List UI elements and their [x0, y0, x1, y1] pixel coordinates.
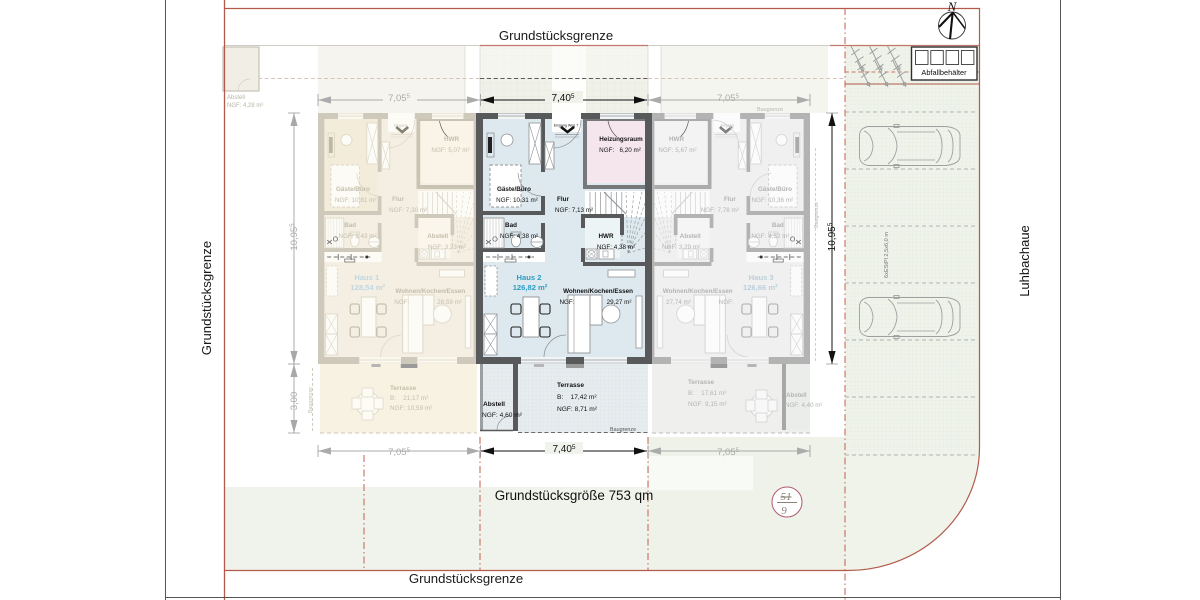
- svg-text:NGF: 7,30 m²: NGF: 7,30 m²: [389, 207, 427, 214]
- svg-text:Grundstücksgrenze: Grundstücksgrenze: [199, 241, 214, 355]
- svg-text:Haus 2: Haus 2: [517, 273, 542, 282]
- svg-text:NGF: 9,15 m²: NGF: 9,15 m²: [688, 401, 727, 408]
- svg-text:NGF: 5,67 m²: NGF: 5,67 m²: [658, 147, 696, 154]
- svg-text:Abstell: Abstell: [483, 401, 505, 408]
- svg-text:Wohnen/Kochen/Essen: Wohnen/Kochen/Essen: [563, 288, 633, 295]
- svg-text:HWR: HWR: [598, 233, 613, 240]
- svg-text:Heizungsraum: Heizungsraum: [599, 136, 643, 143]
- svg-text:Terrasse: Terrasse: [688, 379, 715, 386]
- svg-text:Flur: Flur: [392, 196, 404, 203]
- svg-text:NGF: 3,29 m²: NGF: 3,29 m²: [662, 244, 700, 251]
- svg-text:27,74 m²: 27,74 m²: [666, 299, 691, 306]
- svg-text:Eingang: Eingang: [721, 124, 734, 128]
- svg-text:B: 17,61 m²: B: 17,61 m²: [688, 390, 726, 397]
- svg-text:NGF: 4,28 m²: NGF: 4,28 m²: [227, 103, 263, 109]
- svg-text:Bad: Bad: [505, 222, 517, 229]
- svg-text:Abfallbehälter: Abfallbehälter: [921, 68, 967, 77]
- svg-text:Gäste/Büro: Gäste/Büro: [497, 186, 531, 193]
- svg-text:NGF:: NGF:: [719, 299, 734, 306]
- svg-text:NGF:: NGF:: [559, 299, 574, 306]
- svg-text:128,54 m²: 128,54 m²: [350, 283, 385, 292]
- svg-text:Terrasse: Terrasse: [557, 382, 584, 389]
- svg-text:Terrasse: Terrasse: [390, 385, 417, 392]
- svg-text:Haus 3: Haus 3: [749, 273, 774, 282]
- svg-text:Haus 1: Haus 1: [354, 273, 380, 282]
- svg-text:29,27 m²: 29,27 m²: [607, 299, 632, 306]
- svg-text:126,82 m²: 126,82 m²: [513, 283, 548, 292]
- svg-text:Gäste/Büro: Gäste/Büro: [758, 186, 792, 193]
- svg-text:Bad: Bad: [344, 222, 356, 229]
- svg-text:NGF: 10,81 m²: NGF: 10,81 m²: [335, 197, 377, 204]
- svg-text:NGF: 3,23 m²: NGF: 3,23 m²: [428, 244, 466, 251]
- svg-text:28,59 m²: 28,59 m²: [437, 299, 462, 306]
- svg-text:N: N: [947, 0, 958, 14]
- svg-text:Eingang: Eingang: [394, 124, 407, 128]
- svg-text:NGF:: NGF:: [394, 299, 409, 306]
- svg-text:NGF: 7,13 m²: NGF: 7,13 m²: [555, 207, 593, 214]
- svg-text:NGF: 6,20 m²: NGF: 6,20 m²: [599, 147, 641, 154]
- svg-text:Baugrenze: Baugrenze: [814, 202, 820, 228]
- svg-text:NGF: 5,07 m²: NGF: 5,07 m²: [431, 147, 469, 154]
- svg-text:NGF: 4,40 m²: NGF: 4,40 m²: [785, 402, 822, 409]
- svg-text:Baugrenze: Baugrenze: [610, 427, 636, 433]
- svg-text:NGF: 4,52 m²: NGF: 4,52 m²: [751, 233, 789, 240]
- svg-text:Bad: Bad: [772, 222, 784, 229]
- svg-text:Luhbachaue: Luhbachaue: [1017, 225, 1032, 297]
- svg-text:Baugrenze: Baugrenze: [757, 107, 783, 113]
- svg-text:NGF: 10,59 m²: NGF: 10,59 m²: [390, 405, 432, 412]
- svg-text:Abstell: Abstell: [227, 95, 245, 101]
- svg-text:Abstell: Abstell: [786, 392, 807, 399]
- svg-text:Flur: Flur: [724, 196, 736, 203]
- svg-text:NGF: 4,38 m²: NGF: 4,38 m²: [500, 233, 538, 240]
- svg-text:NGF: 8,71 m²: NGF: 8,71 m²: [557, 406, 598, 413]
- svg-text:9: 9: [781, 505, 787, 517]
- svg-text:NGF: 3,43 m²: NGF: 3,43 m²: [339, 233, 377, 240]
- svg-text:B: 21,17 m²: B: 21,17 m²: [390, 395, 428, 402]
- svg-text:Abstell: Abstell: [680, 233, 701, 240]
- svg-text:Gäste/Büro: Gäste/Büro: [336, 186, 370, 193]
- svg-text:Flur: Flur: [557, 196, 569, 203]
- svg-text:Abstell: Abstell: [427, 233, 448, 240]
- svg-text:Eingang Weg 7: Eingang Weg 7: [554, 124, 579, 128]
- svg-text:NGF: 4,38 m²: NGF: 4,38 m²: [597, 244, 635, 251]
- svg-text:B: 17,42 m²: B: 17,42 m²: [557, 394, 597, 401]
- svg-text:NGF: 10,36 m²: NGF: 10,36 m²: [751, 197, 793, 204]
- svg-text:10,955: 10,955: [827, 222, 838, 251]
- svg-text:NGF: 4,60 m²: NGF: 4,60 m²: [482, 412, 523, 419]
- svg-text:6xEStPl 2,5x6,0 m: 6xEStPl 2,5x6,0 m: [884, 232, 890, 278]
- svg-text:Grundstücksgröße 753 qm: Grundstücksgröße 753 qm: [495, 488, 654, 503]
- svg-text:HWR: HWR: [669, 136, 684, 143]
- svg-text:NGF: 7,78 m²: NGF: 7,78 m²: [701, 207, 739, 214]
- svg-text:126,66 m²: 126,66 m²: [743, 283, 778, 292]
- svg-text:10,955: 10,955: [289, 223, 300, 251]
- svg-text:51: 51: [781, 491, 792, 503]
- svg-text:NGF: 10,31 m²: NGF: 10,31 m²: [496, 197, 538, 204]
- svg-text:HWR: HWR: [444, 136, 459, 143]
- svg-text:Wohnen/Kochen/Essen: Wohnen/Kochen/Essen: [663, 288, 733, 295]
- svg-text:Grundstücksgrenze: Grundstücksgrenze: [409, 571, 523, 586]
- svg-text:3,00: 3,00: [289, 392, 300, 411]
- svg-text:Wohnen/Kochen/Essen: Wohnen/Kochen/Essen: [395, 288, 465, 295]
- svg-text:Baugrenze: Baugrenze: [308, 387, 314, 413]
- svg-text:Grundstücksgrenze: Grundstücksgrenze: [499, 28, 613, 43]
